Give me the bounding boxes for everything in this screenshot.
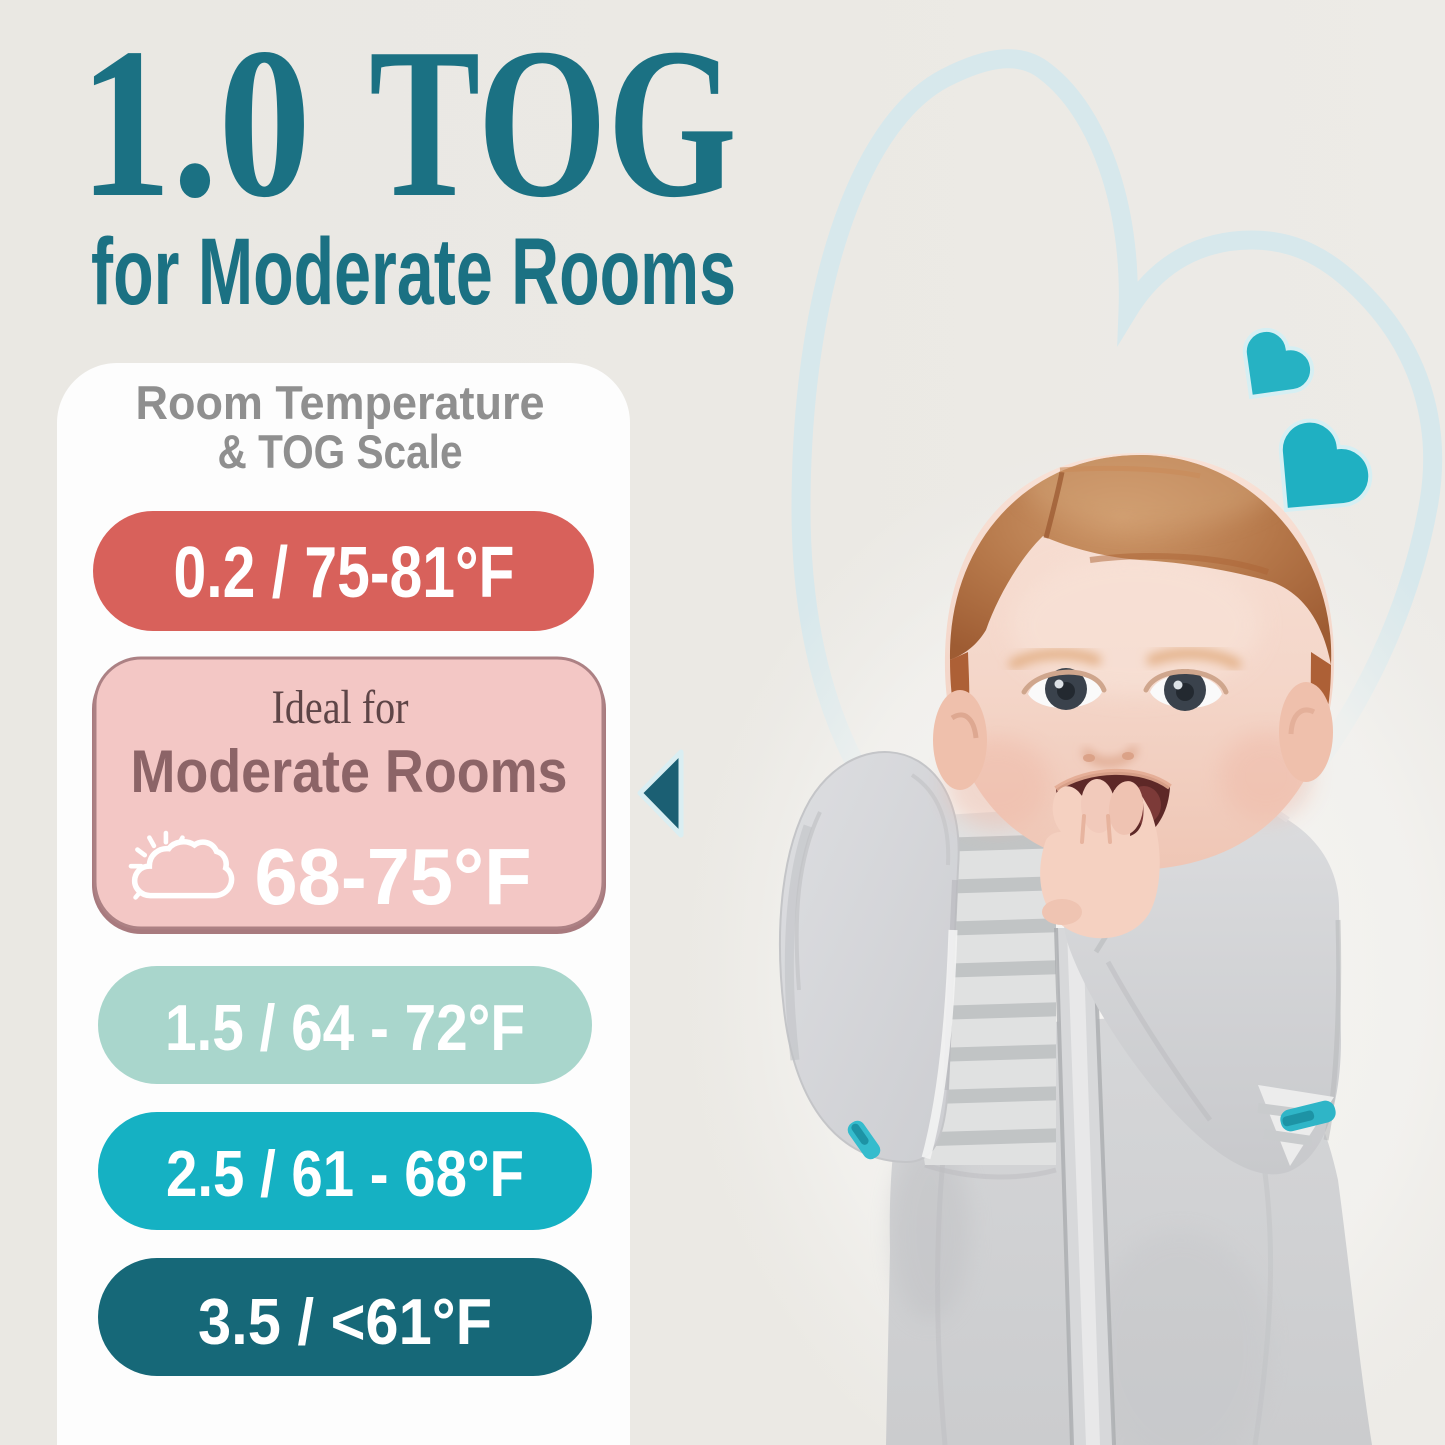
svg-text:1.5 / 64 - 72°F: 1.5 / 64 - 72°F	[165, 991, 525, 1064]
svg-text:3.5 / <61°F: 3.5 / <61°F	[198, 1285, 492, 1358]
svg-text:& TOG Scale: & TOG Scale	[218, 425, 463, 478]
svg-text:68-75°F: 68-75°F	[255, 832, 532, 921]
svg-text:for Moderate Rooms: for Moderate Rooms	[91, 219, 736, 325]
svg-text:TOG: TOG	[369, 3, 737, 242]
svg-text:Ideal for: Ideal for	[272, 681, 409, 734]
svg-text:0.2 / 75-81°F: 0.2 / 75-81°F	[174, 533, 515, 613]
svg-text:1.0: 1.0	[79, 3, 311, 242]
svg-text:Moderate Rooms: Moderate Rooms	[131, 738, 568, 805]
svg-text:Room Temperature: Room Temperature	[136, 376, 545, 429]
svg-text:2.5 / 61 - 68°F: 2.5 / 61 - 68°F	[166, 1137, 524, 1210]
